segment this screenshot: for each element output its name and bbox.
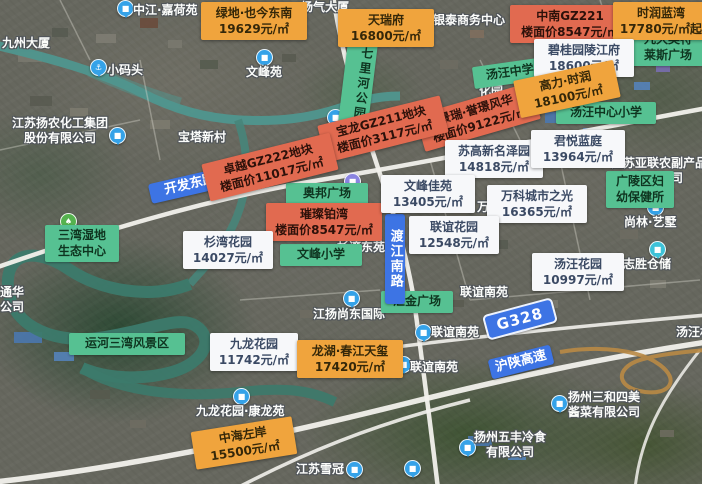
poi-label-line: 扬州三和四美	[568, 390, 640, 405]
poi-label-line: 尚林·艺墅	[624, 215, 677, 230]
estate-name: 九龙花园	[230, 336, 278, 352]
area-label-line: 广陵区妇	[611, 174, 669, 190]
building-icon[interactable]: ■	[256, 49, 273, 66]
price-label[interactable]: 龙湖·春江天玺17420元/㎡	[297, 340, 403, 378]
estate-name: 碧桂园陵江府	[548, 42, 620, 58]
price-label[interactable]: 时润蓝湾17780元/㎡起	[613, 2, 702, 40]
building-icon[interactable]: ■	[415, 324, 432, 341]
poi-label-line: 志胜仓储	[623, 257, 671, 272]
poi-label-line: 江苏雪冠	[296, 462, 344, 477]
poi-label[interactable]: 扬州三和四美酱菜有限公司	[568, 390, 640, 420]
estate-price: 14818元/㎡	[459, 159, 529, 175]
area-label[interactable]: 文峰小学	[280, 244, 362, 266]
price-label[interactable]: 苏高新名泽园14818元/㎡	[445, 140, 543, 178]
poi-label[interactable]: 银泰商务中心	[433, 13, 505, 28]
building-icon[interactable]: ■	[551, 395, 568, 412]
map-label-layer: ■■⚓■■■■■■♠■■■■■■■■中江·嘉荷苑九州大厦扬气大厦银泰商务中心小码…	[0, 0, 702, 484]
price-label[interactable]: 文峰佳苑13405元/㎡	[381, 175, 475, 213]
price-label[interactable]: 绿地·也今东南19629元/㎡	[201, 2, 307, 40]
poi-label-line: 扬州五丰冷食	[474, 430, 546, 445]
poi-label-line: 联谊南苑	[410, 360, 458, 375]
price-label[interactable]: 九龙花园11742元/㎡	[210, 333, 298, 371]
price-label[interactable]: 中海左岸15500元/㎡	[191, 416, 298, 470]
poi-label-line: 通华	[0, 285, 24, 300]
building-icon[interactable]: ■	[117, 0, 134, 17]
poi-label-line: 公司	[0, 300, 24, 315]
area-label-line: 莱斯广场	[634, 48, 702, 64]
area-label-line: 汤汪中心小学	[561, 105, 651, 121]
estate-name: 天瑞府	[368, 12, 404, 28]
poi-label[interactable]: 文峰苑	[246, 65, 282, 80]
price-label[interactable]: 中南GZ221楼面价8547元/㎡	[510, 5, 630, 43]
poi-label[interactable]: 联谊南苑	[410, 360, 458, 375]
poi-label[interactable]: 尚林·艺墅	[624, 215, 677, 230]
estate-name: 龙湖·春江天玺	[312, 343, 389, 359]
estate-price: 12548元/㎡	[419, 235, 489, 251]
road-name-label[interactable]: 沪陕高速	[488, 345, 555, 379]
poi-label[interactable]: 汤汪村	[676, 325, 702, 340]
estate-name: 联谊花园	[430, 219, 478, 235]
area-label[interactable]: 广陵区妇幼保健所	[606, 171, 674, 208]
price-label[interactable]: 杉湾花园14027元/㎡	[183, 231, 273, 269]
area-label-line: 运河三湾风景区	[74, 336, 180, 352]
poi-label-line: 银泰商务中心	[433, 13, 505, 28]
estate-price: 13405元/㎡	[393, 194, 463, 210]
poi-label-line: 小码头	[107, 63, 143, 78]
poi-label-line: 文峰苑	[246, 65, 282, 80]
price-label[interactable]: 联谊花园12548元/㎡	[409, 216, 499, 254]
price-label[interactable]: 汤汪花园10997元/㎡	[532, 253, 624, 291]
estate-price: 17780元/㎡起	[620, 21, 702, 37]
poi-label[interactable]: 中江·嘉荷苑	[133, 3, 198, 18]
poi-label-line: 江苏扬农化工集团	[12, 116, 108, 131]
estate-price: 17420元/㎡	[315, 359, 385, 375]
poi-label[interactable]: 小码头	[107, 63, 143, 78]
poi-label[interactable]: 通华公司	[0, 285, 24, 315]
poi-label[interactable]: 志胜仓储	[623, 257, 671, 272]
estate-price: 16800元/㎡	[351, 28, 421, 44]
price-label[interactable]: 天瑞府16800元/㎡	[338, 9, 434, 47]
area-label-line: 文峰小学	[285, 247, 357, 263]
poi-label[interactable]: 联谊南苑	[460, 285, 508, 300]
poi-label[interactable]: 江苏扬农化工集团股份有限公司	[12, 116, 108, 146]
estate-price: 楼面价8547元/㎡	[275, 222, 373, 238]
building-icon[interactable]: ■	[404, 460, 421, 477]
building-icon[interactable]: ■	[346, 461, 363, 478]
estate-name: 璀璨铂湾	[300, 206, 348, 222]
estate-price: 14027元/㎡	[193, 250, 263, 266]
area-label[interactable]: 三湾湿地生态中心	[45, 225, 119, 262]
estate-name: 汤汪花园	[554, 256, 602, 272]
poi-label-line: 联谊南苑	[460, 285, 508, 300]
poi-label-line: 中江·嘉荷苑	[133, 3, 198, 18]
poi-label-line: 宝塔新村	[178, 130, 226, 145]
estate-name: 万科城市之光	[501, 188, 573, 204]
area-label-line: 三湾湿地	[50, 228, 114, 244]
price-label[interactable]: 万科城市之光16365元/㎡	[487, 185, 587, 223]
area-label[interactable]: 奥邦广场	[286, 183, 368, 205]
poi-label[interactable]: 九龙花园·康龙苑	[196, 404, 285, 419]
area-label-line: 生态中心	[50, 244, 114, 260]
building-icon[interactable]: ■	[233, 388, 250, 405]
estate-name: 文峰佳苑	[404, 178, 452, 194]
estate-name: 苏高新名泽园	[458, 143, 530, 159]
road-name-label[interactable]: 渡江南路	[385, 214, 405, 304]
estate-name: 杉湾花园	[204, 234, 252, 250]
poi-label-line: 九龙花园·康龙苑	[196, 404, 285, 419]
estate-price: 楼面价8547元/㎡	[521, 24, 619, 40]
poi-label-line: 有限公司	[474, 445, 546, 460]
estate-price: 19629元/㎡	[219, 21, 289, 37]
building-icon[interactable]: ■	[109, 127, 126, 144]
estate-name: 君悦蓝庭	[554, 133, 602, 149]
building-icon[interactable]: ■	[343, 290, 360, 307]
estate-price: 16365元/㎡	[502, 204, 572, 220]
poi-label[interactable]: 九州大厦	[2, 36, 50, 51]
poi-label-line: 联谊南苑	[431, 325, 479, 340]
estate-name: 绿地·也今东南	[216, 5, 293, 21]
area-label-line: 奥邦广场	[291, 186, 363, 202]
poi-label-line: 股份有限公司	[12, 131, 108, 146]
poi-label[interactable]: 联谊南苑	[431, 325, 479, 340]
area-label-line: 幼保健所	[611, 190, 669, 206]
anchor-icon[interactable]: ⚓	[90, 59, 107, 76]
poi-label[interactable]: 江苏雪冠	[296, 462, 344, 477]
satellite-map[interactable]: ■■⚓■■■■■■♠■■■■■■■■中江·嘉荷苑九州大厦扬气大厦银泰商务中心小码…	[0, 0, 702, 484]
poi-label[interactable]: 宝塔新村	[178, 130, 226, 145]
price-label[interactable]: 璀璨铂湾楼面价8547元/㎡	[266, 203, 382, 241]
building-icon[interactable]: ■	[649, 241, 666, 258]
area-label[interactable]: 运河三湾风景区	[69, 333, 185, 355]
estate-name: 时润蓝湾	[637, 5, 685, 21]
poi-label-line: 九州大厦	[2, 36, 50, 51]
poi-label-line: 江扬尚东国际	[313, 307, 385, 322]
price-label[interactable]: 君悦蓝庭13964元/㎡	[531, 130, 625, 168]
road-number-badge[interactable]: G328	[482, 297, 558, 341]
poi-label-line: 酱菜有限公司	[568, 405, 640, 420]
estate-price: 13964元/㎡	[543, 149, 613, 165]
estate-price: 11742元/㎡	[219, 352, 289, 368]
poi-label[interactable]: 扬州五丰冷食有限公司	[474, 430, 546, 460]
estate-price: 10997元/㎡	[543, 272, 613, 288]
poi-label-line: 汤汪村	[676, 325, 702, 340]
estate-name: 中南GZ221	[536, 8, 604, 24]
price-label[interactable]: 宝龙GZ211地块楼面价3117元/㎡	[317, 95, 449, 163]
poi-label[interactable]: 江扬尚东国际	[313, 307, 385, 322]
